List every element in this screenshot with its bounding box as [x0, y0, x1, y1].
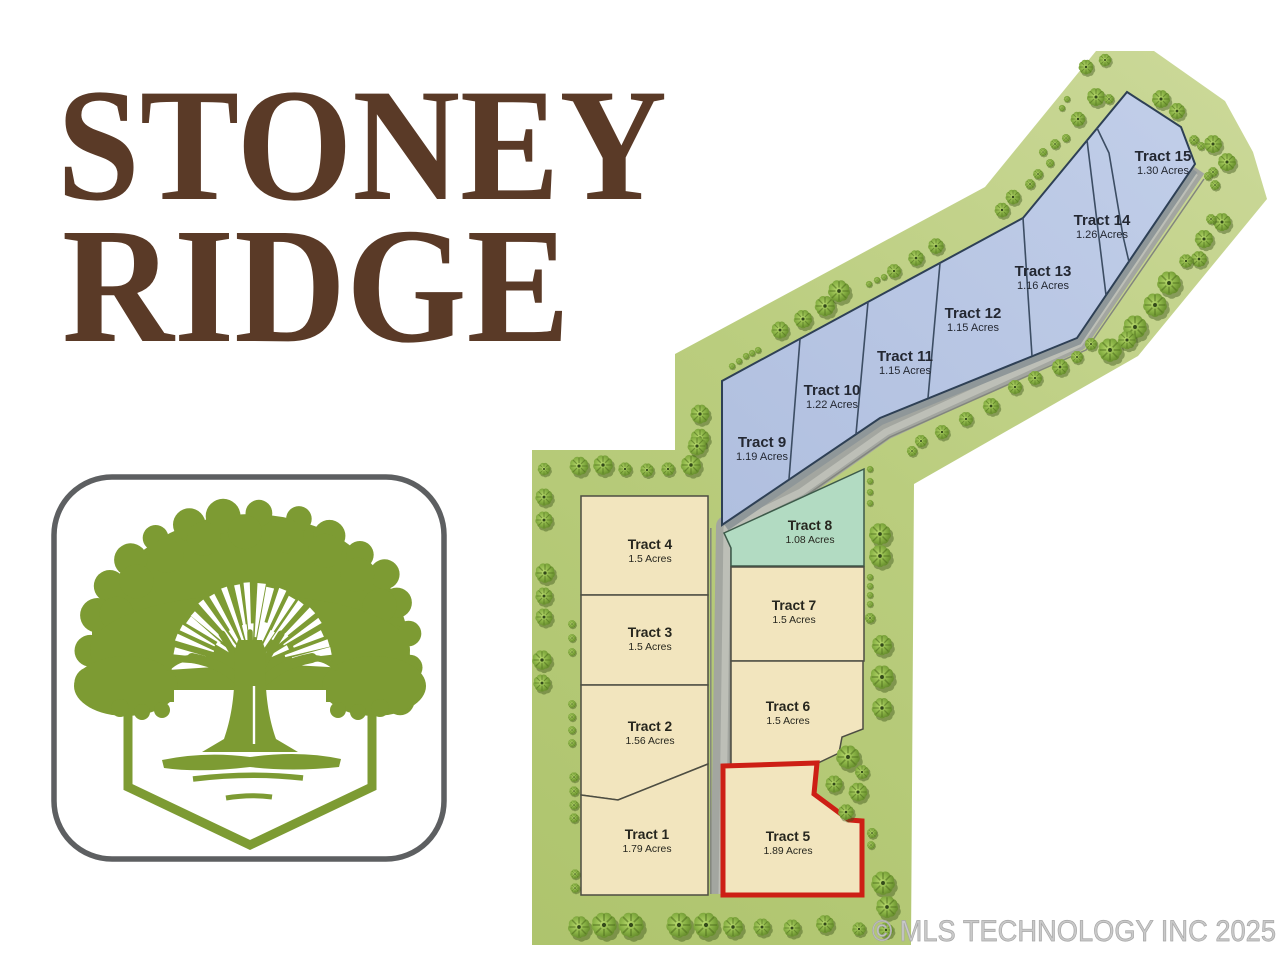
svg-text:1.08 Acres: 1.08 Acres: [785, 535, 834, 546]
svg-text:Tract 4: Tract 4: [628, 537, 673, 552]
svg-text:1.56 Acres: 1.56 Acres: [625, 736, 674, 747]
svg-text:Tract 14: Tract 14: [1074, 212, 1131, 229]
svg-text:Tract 12: Tract 12: [945, 305, 1002, 322]
svg-text:Tract 9: Tract 9: [738, 434, 786, 451]
svg-text:Tract 8: Tract 8: [788, 518, 833, 533]
svg-text:Tract 13: Tract 13: [1015, 263, 1072, 280]
svg-text:1.5 Acres: 1.5 Acres: [772, 615, 815, 626]
svg-text:RIDGE: RIDGE: [62, 194, 570, 377]
svg-text:1.30 Acres: 1.30 Acres: [1137, 165, 1189, 177]
svg-text:1.5 Acres: 1.5 Acres: [628, 642, 671, 653]
svg-text:1.5 Acres: 1.5 Acres: [628, 554, 671, 565]
svg-text:1.89 Acres: 1.89 Acres: [763, 846, 812, 857]
svg-text:1.15 Acres: 1.15 Acres: [947, 322, 999, 334]
svg-text:1.79 Acres: 1.79 Acres: [622, 844, 671, 855]
svg-text:Tract 11: Tract 11: [877, 348, 933, 365]
svg-text:1.22 Acres: 1.22 Acres: [806, 399, 858, 411]
svg-text:Tract 1: Tract 1: [625, 827, 670, 842]
svg-text:Tract 15: Tract 15: [1135, 148, 1192, 165]
svg-text:Tract 10: Tract 10: [804, 382, 861, 399]
svg-text:Tract 2: Tract 2: [628, 719, 673, 734]
svg-text:Tract 5: Tract 5: [766, 829, 811, 844]
svg-text:1.5 Acres: 1.5 Acres: [766, 716, 809, 727]
svg-text:Tract 7: Tract 7: [772, 598, 817, 613]
svg-text:1.19 Acres: 1.19 Acres: [736, 451, 788, 463]
svg-text:1.26 Acres: 1.26 Acres: [1076, 229, 1128, 241]
svg-text:Tract 6: Tract 6: [766, 699, 811, 714]
svg-text:© MLS TECHNOLOGY INC 2025: © MLS TECHNOLOGY INC 2025: [872, 915, 1276, 948]
svg-text:1.15 Acres: 1.15 Acres: [879, 365, 931, 377]
svg-text:Tract 3: Tract 3: [628, 625, 673, 640]
svg-text:1.16 Acres: 1.16 Acres: [1017, 280, 1069, 292]
